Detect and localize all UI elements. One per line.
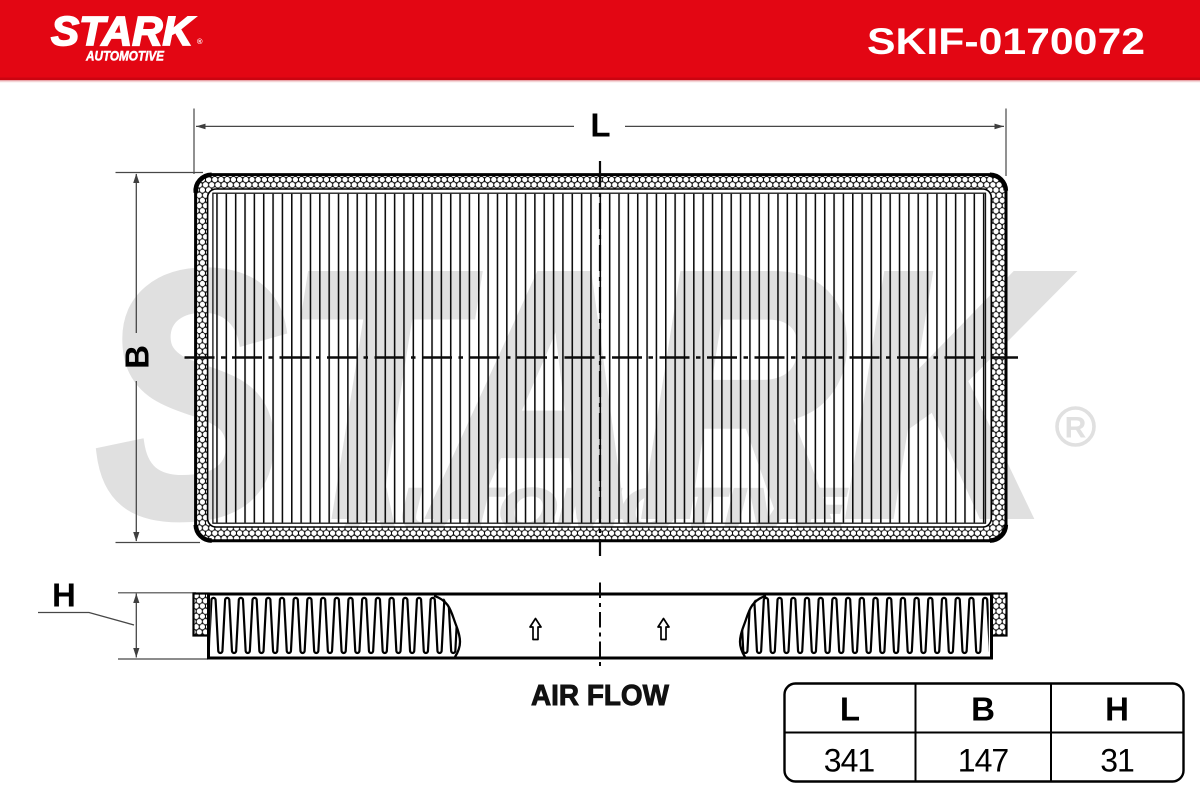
svg-text:341: 341 [824, 743, 875, 779]
svg-text:147: 147 [958, 743, 1009, 779]
svg-text:L: L [590, 107, 610, 144]
svg-text:B: B [971, 691, 995, 728]
svg-text:H: H [52, 577, 76, 614]
svg-text:H: H [1105, 691, 1129, 728]
svg-text:STARK: STARK [51, 8, 196, 54]
svg-text:AIR FLOW: AIR FLOW [531, 680, 670, 712]
svg-text:AUTOMOTIVE: AUTOMOTIVE [85, 49, 165, 64]
svg-text:L: L [840, 691, 860, 728]
svg-text:SKIF-0170072: SKIF-0170072 [867, 21, 1145, 62]
svg-text:31: 31 [1100, 743, 1134, 779]
svg-text:B: B [118, 345, 155, 369]
svg-text:®: ® [197, 37, 203, 46]
svg-text:R: R [1065, 412, 1087, 445]
